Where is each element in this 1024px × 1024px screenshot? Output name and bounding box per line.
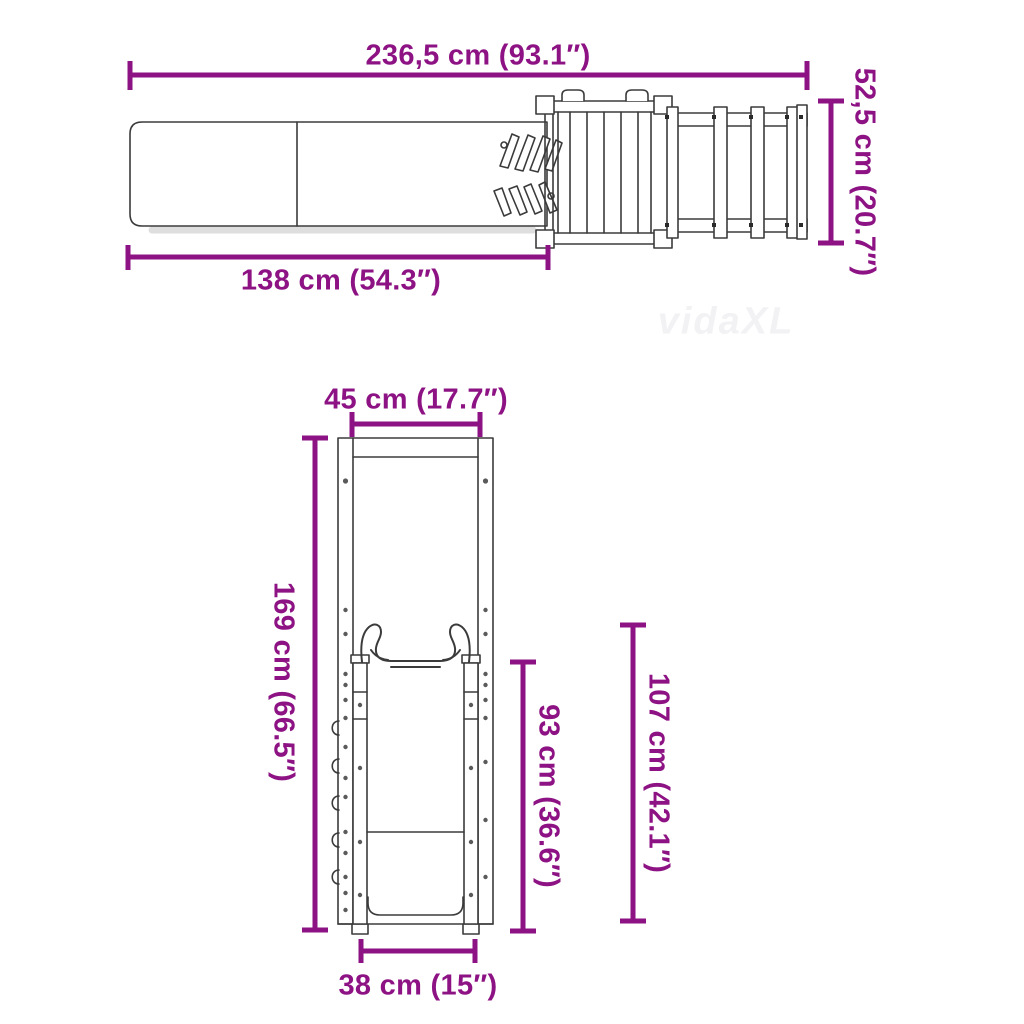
dim-line-top-width bbox=[352, 412, 480, 437]
product-dimension-diagram: vidaXL 236,5 cm (93.1″) 52,5 cm (20.7″) … bbox=[0, 0, 1024, 1024]
dim-label-structure-height: 52,5 cm (20.7″) bbox=[850, 68, 879, 277]
dim-line-total-height bbox=[302, 438, 328, 930]
dim-label-handle-height: 107 cm (42.1″) bbox=[644, 673, 673, 873]
dim-line-structure-height bbox=[818, 101, 844, 243]
ladder-top-view bbox=[665, 105, 807, 239]
platform-top-view bbox=[536, 90, 672, 248]
slide-rails bbox=[351, 655, 480, 924]
dim-label-total-height: 169 cm (66.5″) bbox=[269, 582, 298, 782]
ladder-connector-dots bbox=[665, 115, 803, 227]
front-view-drawing bbox=[332, 438, 493, 934]
watermark: vidaXL bbox=[658, 301, 795, 344]
dim-label-total-width: 236,5 cm (93.1″) bbox=[365, 42, 590, 71]
slide-bed bbox=[367, 832, 464, 915]
dim-label-slide-length: 138 cm (54.3″) bbox=[241, 267, 441, 296]
slide-handles bbox=[361, 625, 469, 667]
tower-base bbox=[338, 924, 493, 934]
dim-label-top-width: 45 cm (17.7″) bbox=[324, 386, 508, 415]
slide-top-view bbox=[130, 122, 547, 226]
top-view-drawing bbox=[130, 90, 807, 248]
dim-label-bottom-width: 38 cm (15″) bbox=[338, 972, 497, 1001]
dim-label-slide-height: 93 cm (36.6″) bbox=[534, 704, 563, 888]
dim-line-bottom-width bbox=[361, 939, 475, 963]
